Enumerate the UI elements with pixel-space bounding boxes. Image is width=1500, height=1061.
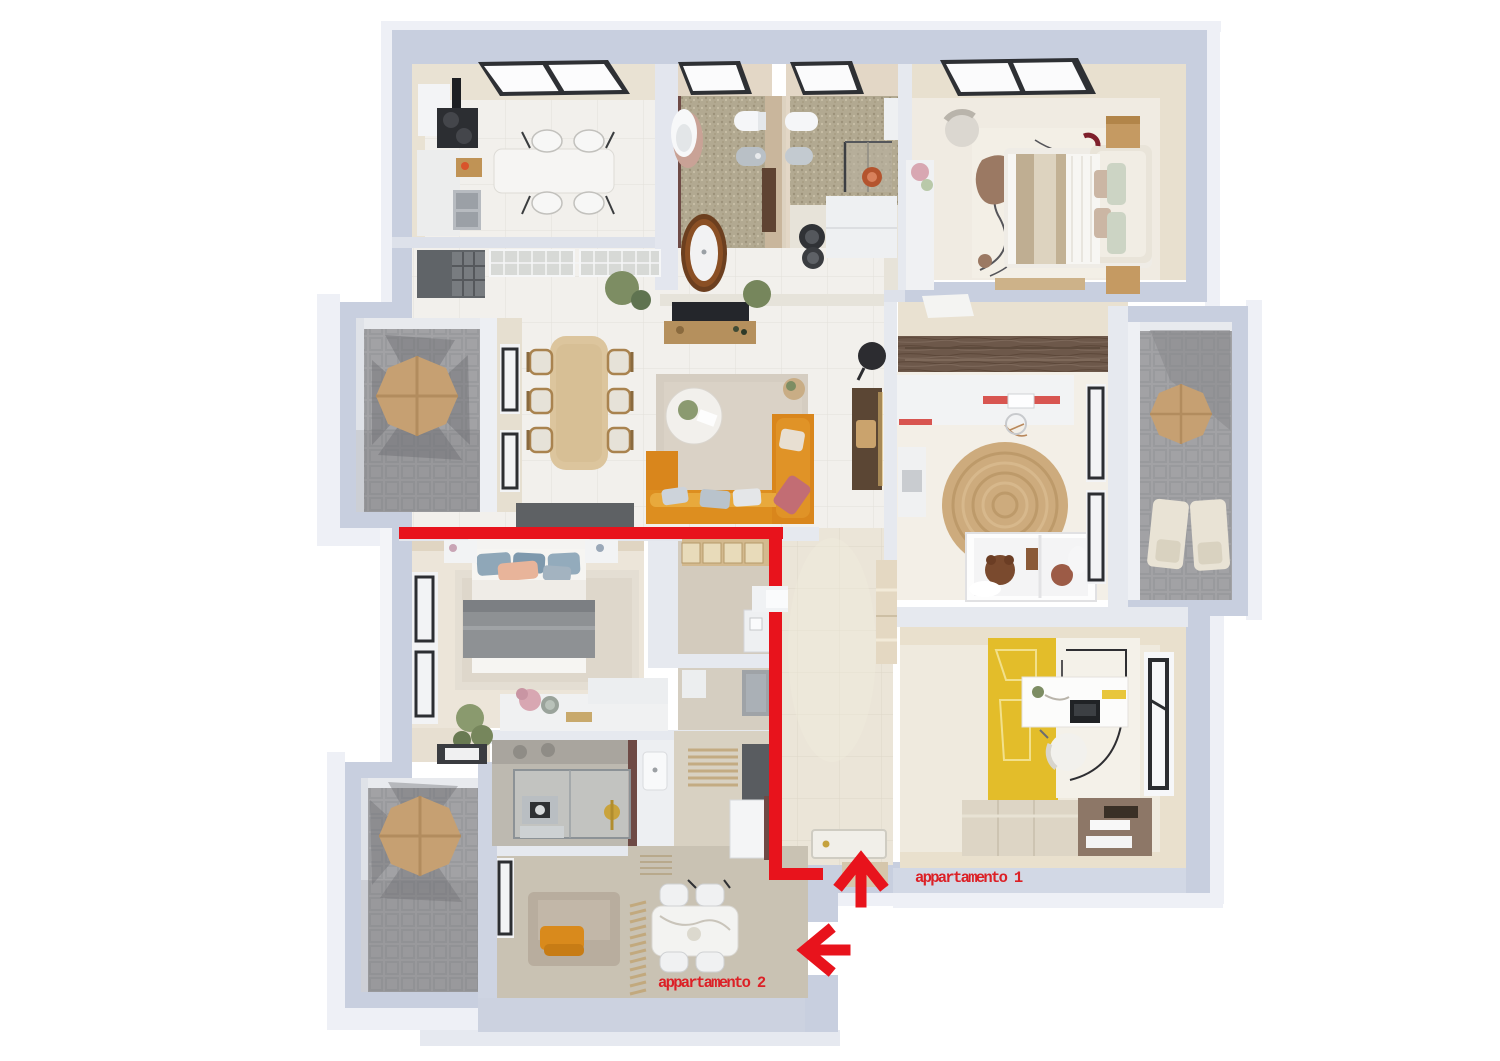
svg-text:appartamento 2: appartamento 2 <box>658 974 766 992</box>
svg-text:appartamento 1: appartamento 1 <box>915 869 1023 887</box>
